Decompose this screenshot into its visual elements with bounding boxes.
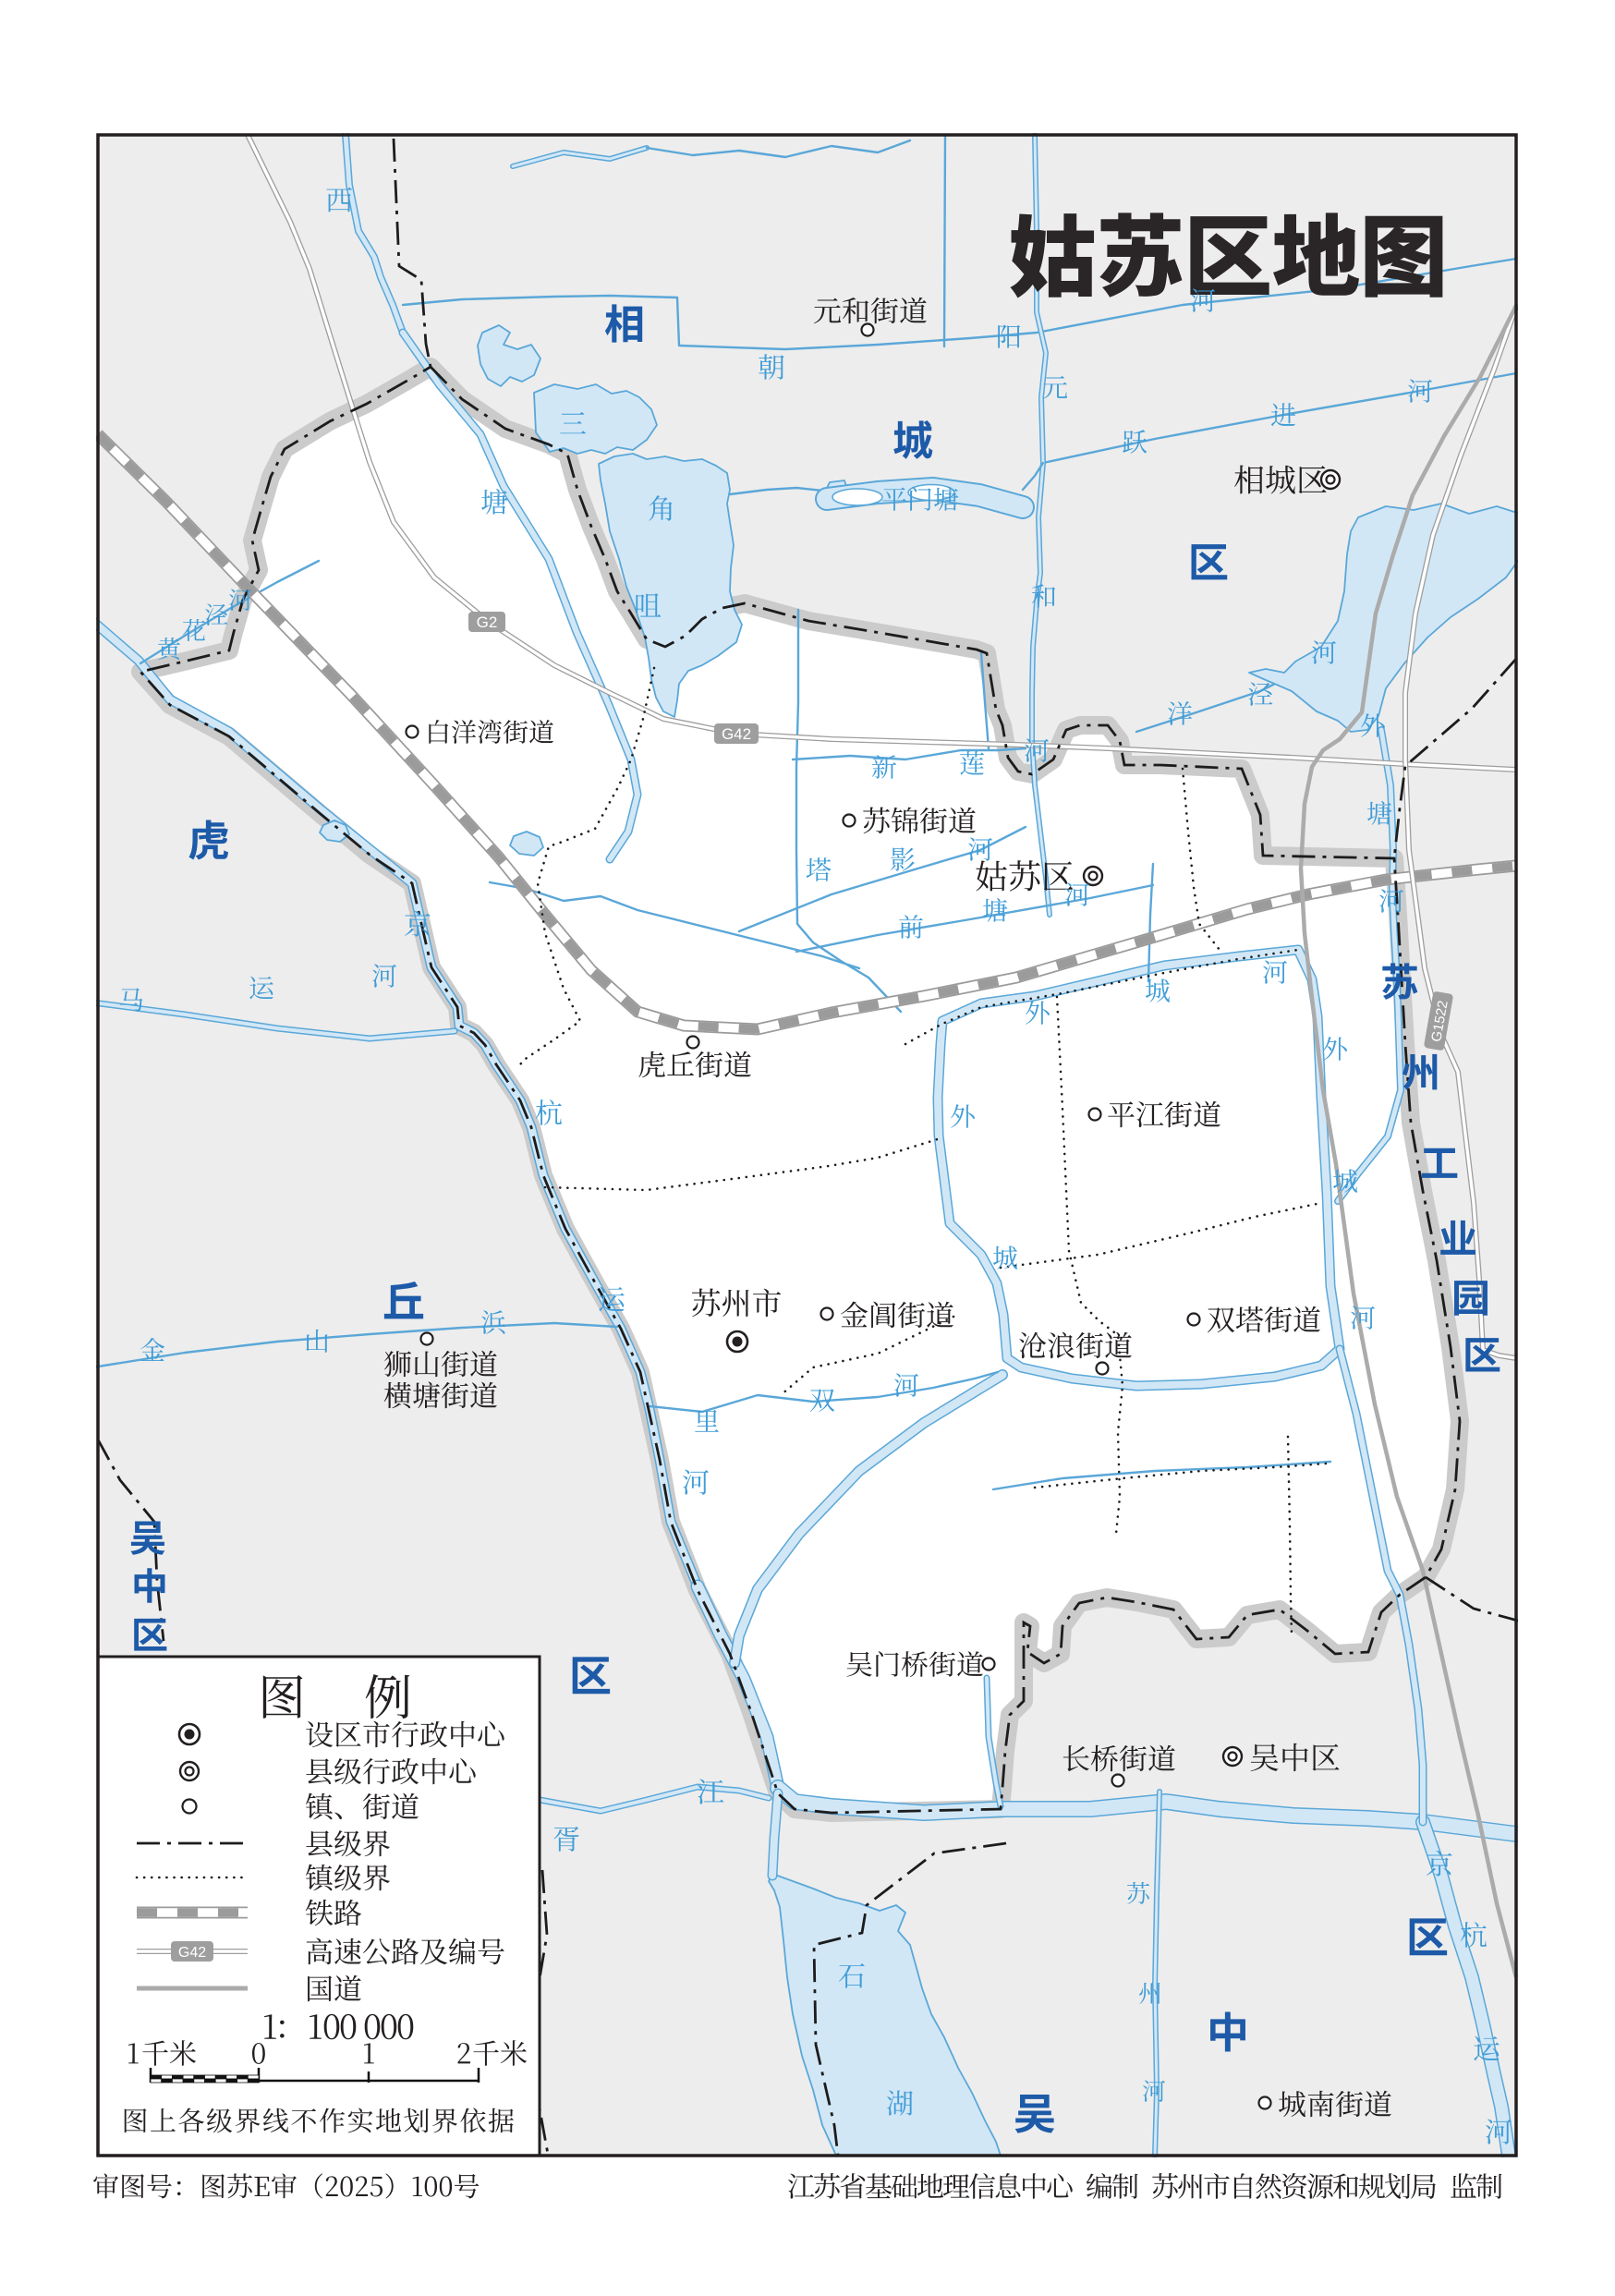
svg-text:G2: G2 (477, 613, 498, 631)
svg-text:G42: G42 (178, 1945, 206, 1961)
svg-text:G42: G42 (722, 725, 751, 743)
